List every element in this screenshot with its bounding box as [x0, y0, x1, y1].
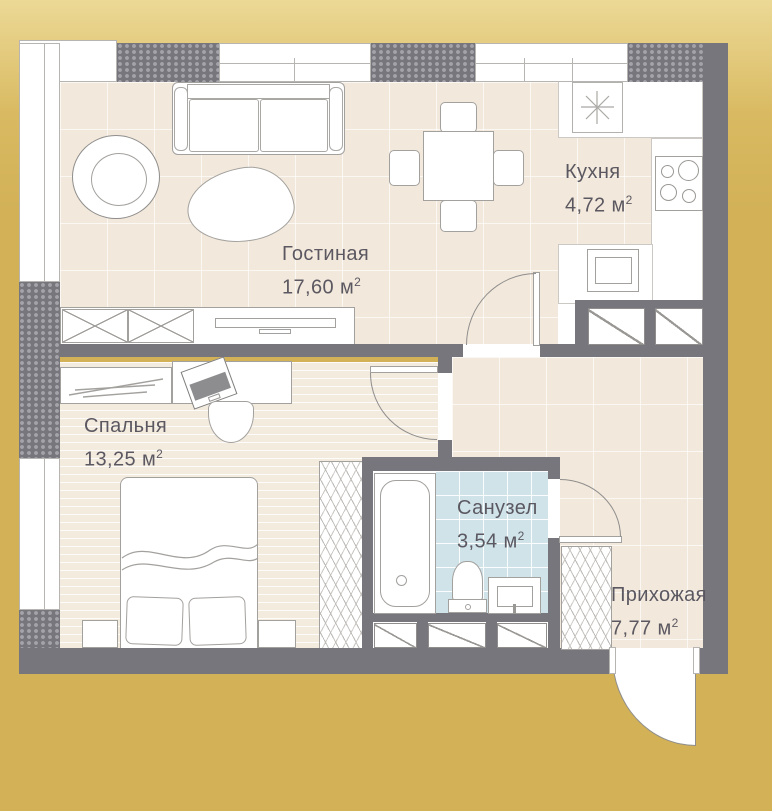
kitchen-sink-basin [595, 257, 632, 284]
kitchen-counter-fill [558, 304, 575, 344]
entrance-door [612, 656, 696, 746]
room-label-living: Гостиная 17,60 м2 [282, 240, 369, 302]
burner-icon [661, 165, 674, 178]
sink-tap [513, 604, 516, 614]
shelf [60, 367, 172, 404]
window-left-bedroom [19, 458, 60, 610]
armchair [72, 135, 160, 219]
dining-chair [440, 200, 477, 232]
wall-left [19, 282, 60, 458]
armchair-seat [91, 153, 147, 206]
bedroom-wardrobe [319, 461, 363, 651]
room-area: 13,25 м2 [84, 440, 167, 474]
sofa-cushion [260, 99, 328, 152]
toilet [452, 561, 483, 602]
dining-chair [440, 102, 477, 133]
room-area: 4,72 м2 [565, 186, 633, 220]
room-label-hallway: Прихожая 7,77 м2 [611, 581, 707, 643]
burner-icon [660, 184, 677, 201]
tv-stand-cabinet [128, 309, 194, 343]
window-frame [44, 44, 45, 281]
dining-chair [389, 150, 420, 186]
window-frame [572, 58, 573, 81]
entrance-door-post [609, 647, 616, 674]
door-leaf-bathroom [559, 536, 622, 543]
bedroom-door-opening [438, 373, 452, 440]
bathtub [374, 473, 436, 614]
wall-bottom [19, 648, 612, 674]
window-top-kitchen [475, 43, 628, 82]
room-label-bedroom: Спальня 13,25 м2 [84, 412, 167, 474]
vent-box [572, 82, 623, 133]
nightstand [82, 620, 118, 648]
wall-bathroom-bottom [373, 613, 548, 622]
kitchen-sink [587, 249, 639, 292]
room-area: 17,60 м2 [282, 268, 369, 302]
room-label-bathroom: Санузел 3,54 м2 [457, 494, 538, 556]
tv [215, 318, 336, 328]
door-leaf-bedroom [370, 366, 438, 373]
tv-base [259, 329, 291, 334]
wall-right [703, 43, 728, 674]
window-top-living [219, 43, 371, 82]
window-left-living [19, 43, 60, 282]
floor-plan: Гостиная 17,60 м2 Кухня 4,72 м2 Спальня … [0, 0, 772, 811]
entrance-door-post [693, 647, 700, 674]
bathtub-drain [396, 575, 407, 586]
wall-living-bedroom [60, 344, 463, 357]
room-label-kitchen: Кухня 4,72 м2 [565, 158, 633, 220]
wall-bedroom-hallway [438, 357, 452, 373]
living-door-opening [463, 344, 540, 357]
burner-icon [682, 189, 696, 203]
shaft [374, 623, 417, 648]
sofa-back [187, 84, 330, 99]
room-name: Прихожая [611, 581, 707, 609]
wall-bathroom-left [362, 471, 373, 650]
wall-bedroom-hallway [438, 440, 452, 457]
window-frame [44, 459, 45, 609]
hallway-wardrobe [561, 546, 612, 650]
room-area: 7,77 м2 [611, 609, 707, 643]
sofa-armrest [174, 87, 188, 151]
room-name: Гостиная [282, 240, 369, 268]
window-frame [220, 63, 370, 64]
sofa-armrest [329, 87, 343, 151]
room-name: Кухня [565, 158, 633, 186]
bathroom-door-opening [548, 479, 560, 538]
toilet-flush [465, 604, 471, 610]
sofa-cushion [189, 99, 259, 152]
wall-kitchen-bottom [575, 300, 703, 308]
room-name: Санузел [457, 494, 538, 522]
shaft-divider [417, 622, 428, 648]
wall-bathroom-right [548, 538, 560, 650]
room-name: Спальня [84, 412, 167, 440]
tv-stand-cabinet [62, 309, 128, 343]
dining-table [423, 131, 494, 201]
shaft-divider [486, 622, 497, 648]
stove [655, 156, 703, 211]
toilet-tank [448, 599, 487, 613]
bathtub-basin [380, 480, 430, 607]
wall-top [371, 43, 475, 82]
shaft [588, 308, 645, 345]
room-area: 3,54 м2 [457, 522, 538, 556]
wall-top [117, 43, 219, 82]
wall-bathroom-right [548, 471, 560, 479]
dining-chair [493, 150, 524, 186]
window-frame [524, 58, 525, 81]
shaft-divider [645, 308, 655, 345]
wall-bathroom-top [362, 457, 560, 471]
shaft-cap [575, 308, 588, 345]
window-frame [294, 58, 295, 81]
vent-icon [573, 83, 622, 132]
burner-icon [678, 160, 699, 181]
wall-hallway-top [540, 344, 703, 357]
shaft [497, 623, 547, 648]
shelf-items [61, 368, 171, 403]
pillow [188, 596, 247, 646]
shaft [428, 623, 486, 648]
nightstand [258, 620, 296, 648]
shaft [655, 308, 703, 345]
bathroom-sink [488, 577, 541, 614]
window-frame [476, 63, 627, 64]
sofa [172, 82, 345, 155]
pillow [125, 596, 184, 646]
